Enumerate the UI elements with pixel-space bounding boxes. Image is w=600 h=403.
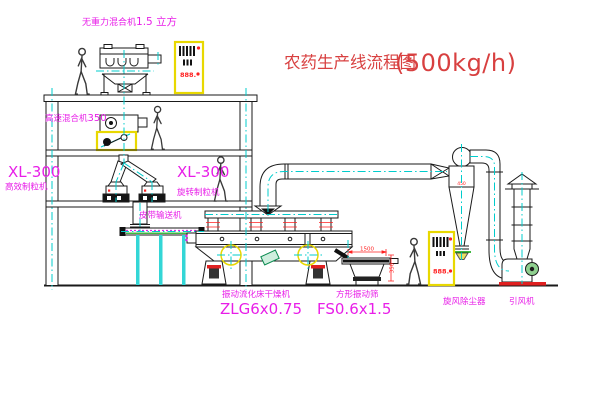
process-flow-drawing: 888. [0, 0, 600, 403]
cabinet-display-readout: 888. [433, 268, 449, 276]
high-speed-mixer-label: 高速混合机350 [45, 113, 107, 124]
fan-name-label: 引风机 [509, 296, 535, 307]
belt-conveyor-label: 皮带输送机 [139, 210, 182, 221]
dryer-model-label: ZLG6x0.75 [220, 300, 302, 318]
worker-figure-roof [75, 48, 89, 94]
dryer-name-label: 振动流化床干燥机 [222, 289, 291, 300]
granulator-left-model-label: XL-300 [8, 163, 60, 181]
sieve-length-dim: 1500 [360, 247, 374, 253]
granulator-right-model-label: XL-300 [177, 163, 229, 181]
drawing-title-capacity: (500kg/h) [395, 49, 516, 77]
granulator-right-name-label: 旋转制粒机 [177, 187, 220, 198]
dryer-vibration-motor-left [202, 261, 226, 284]
sieve-height-dim: 350 [390, 262, 396, 273]
cabinet-indicator-light [449, 237, 452, 240]
cabinet-display-readout: 888. [180, 71, 196, 79]
worker-figure-floor2 [151, 106, 164, 149]
square-vibrating-sieve: 1500 350 [342, 247, 398, 286]
cad-flow-diagram-canvas: 888. [0, 0, 600, 403]
worker-figure-ground [407, 238, 421, 284]
fan-suction-duct [470, 150, 508, 279]
control-cabinet-right: 888. [429, 232, 454, 285]
cabinet-indicator-light [197, 46, 200, 49]
cyclone-name-label: 旋风除尘器 [443, 296, 486, 307]
control-cabinet-top: 888. [175, 42, 203, 93]
fluid-bed-dryer [185, 211, 352, 284]
sieve-name-label: 方形振动筛 [336, 289, 379, 300]
granulator-left-name-label: 高效制粒机 [5, 182, 48, 193]
gravity-free-mixer [100, 45, 161, 96]
gravity-mixer-label: 无重力混合机1.5 立方 [82, 15, 177, 28]
sieve-model-label: FS0.6x1.5 [317, 300, 391, 318]
